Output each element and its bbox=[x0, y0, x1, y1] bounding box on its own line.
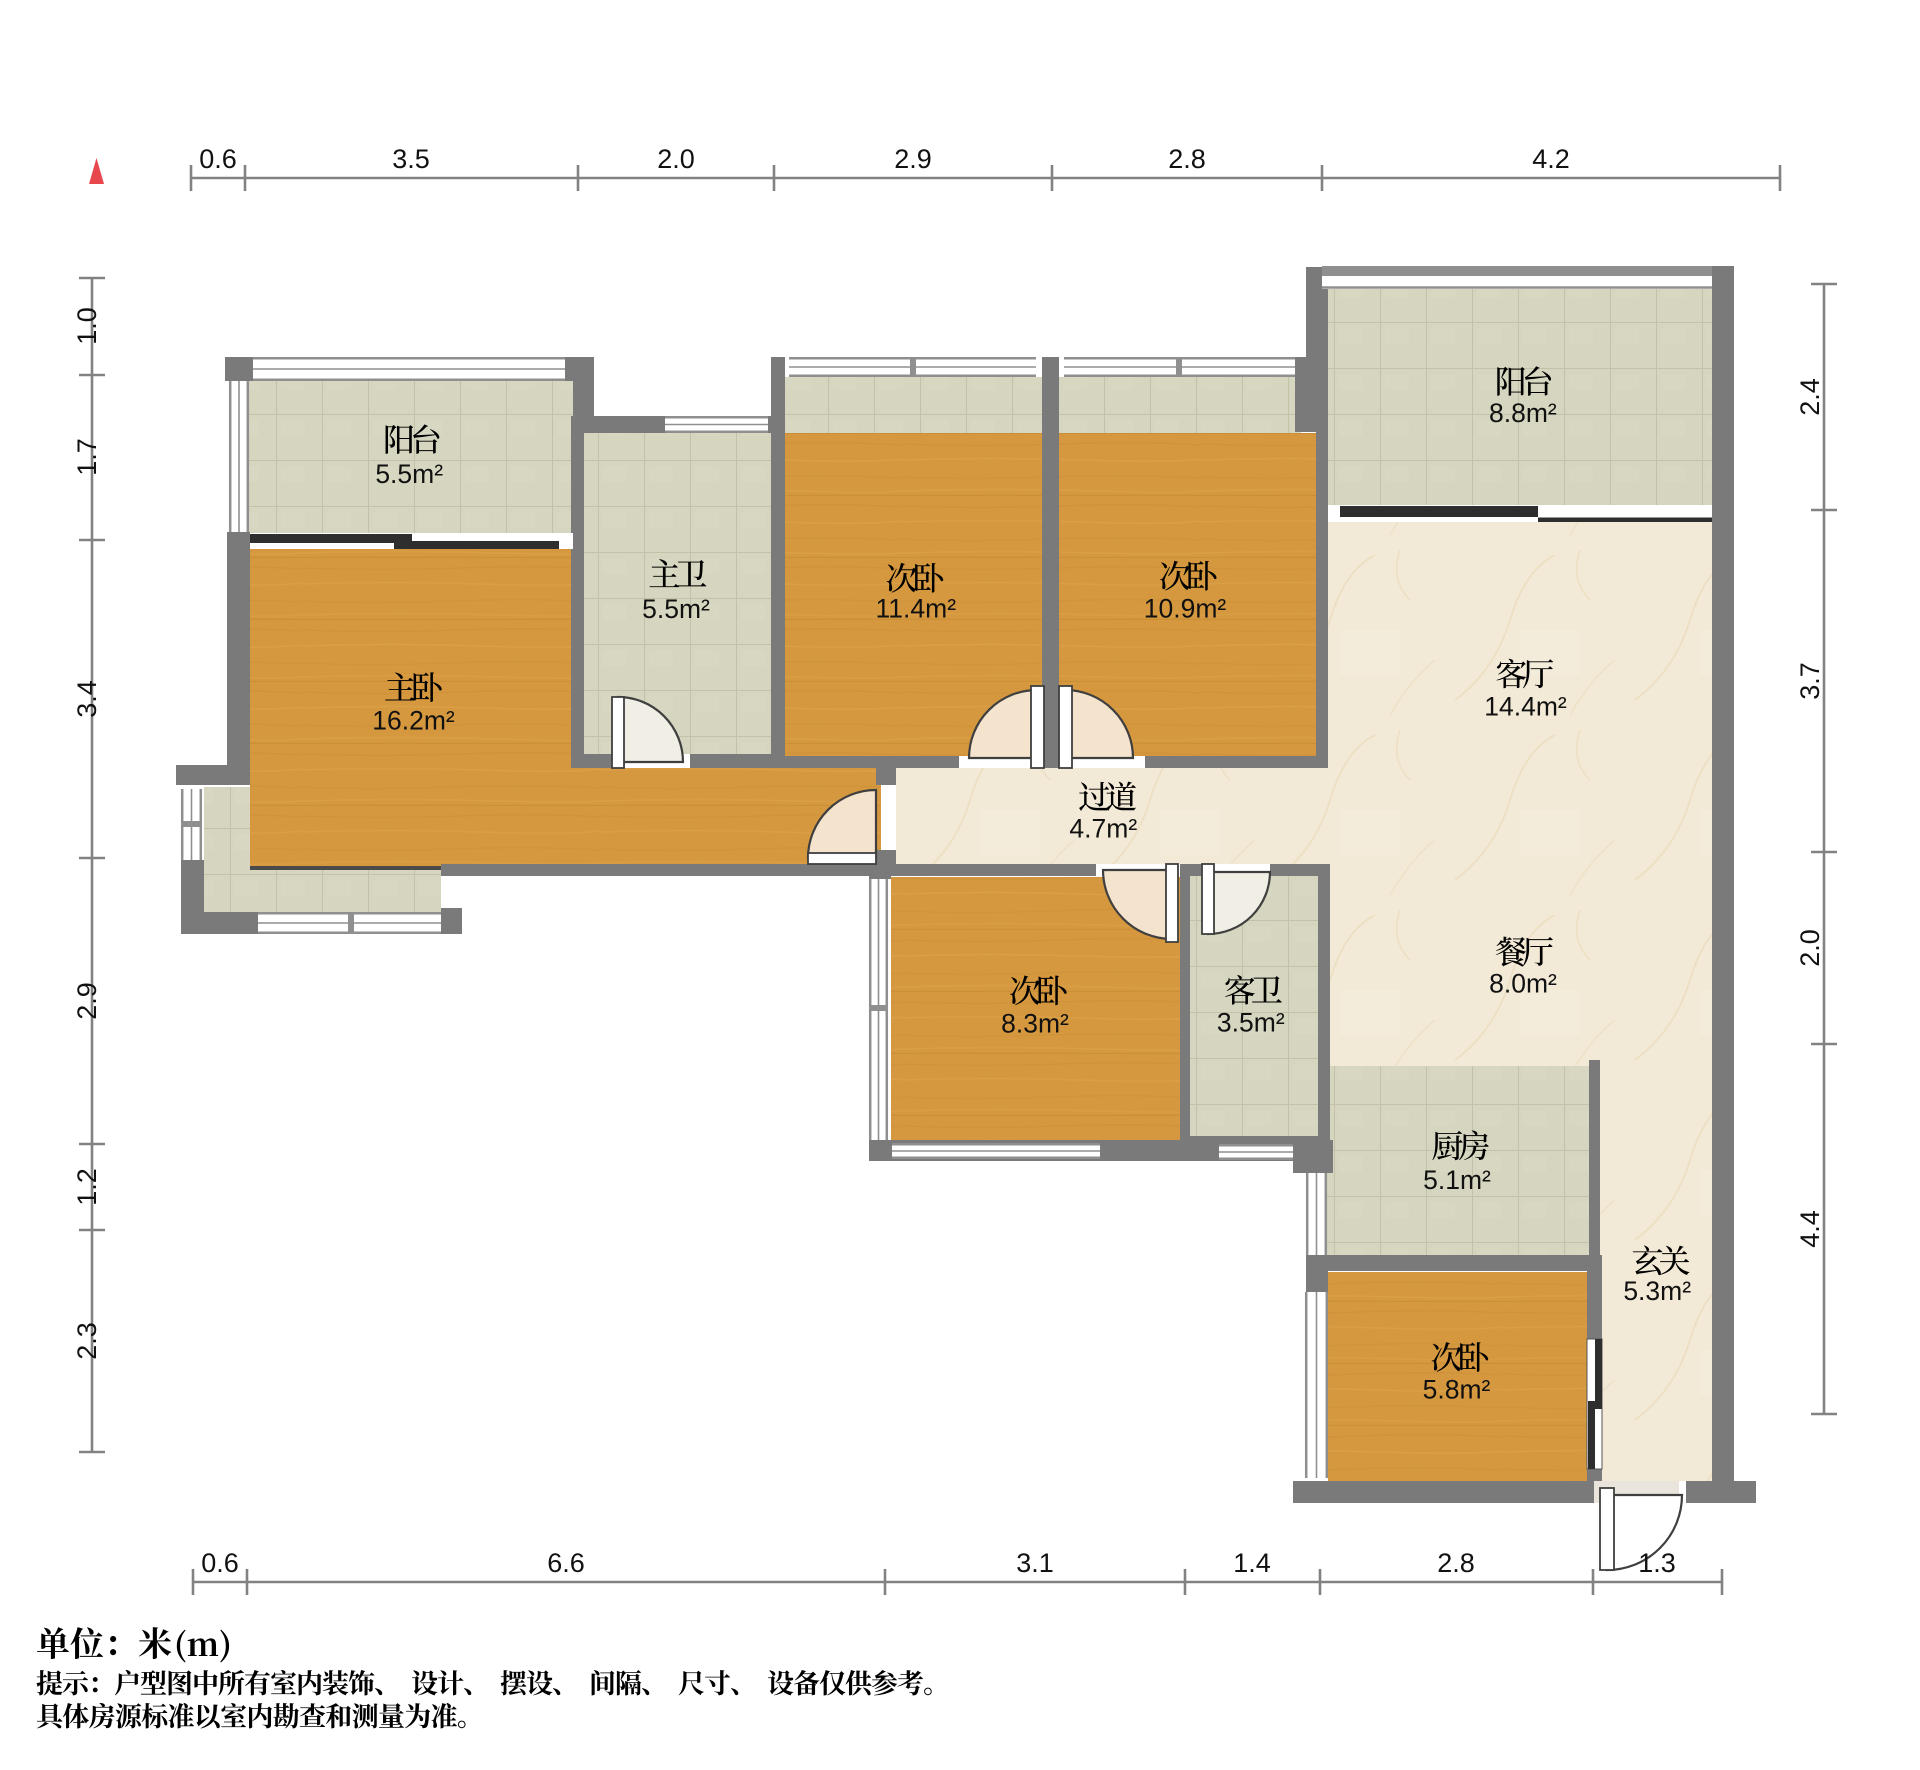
svg-text:1.2: 1.2 bbox=[72, 1168, 102, 1206]
svg-text:2.9: 2.9 bbox=[894, 144, 932, 174]
svg-text:14.4m²: 14.4m² bbox=[1484, 691, 1567, 721]
svg-text:2.0: 2.0 bbox=[657, 144, 695, 174]
svg-text:4.4: 4.4 bbox=[1795, 1210, 1825, 1248]
svg-text:3.5m²: 3.5m² bbox=[1217, 1008, 1285, 1038]
svg-text:5.1m²: 5.1m² bbox=[1423, 1165, 1491, 1195]
svg-text:11.4m²: 11.4m² bbox=[876, 593, 957, 623]
svg-text:1.3: 1.3 bbox=[1638, 1548, 1676, 1578]
svg-text:5.8m²: 5.8m² bbox=[1423, 1375, 1491, 1405]
svg-text:8.0m²: 8.0m² bbox=[1489, 969, 1557, 999]
svg-text:0.6: 0.6 bbox=[201, 1548, 239, 1578]
svg-text:2.8: 2.8 bbox=[1437, 1548, 1475, 1578]
svg-text:6.6: 6.6 bbox=[547, 1548, 585, 1578]
svg-text:1.4: 1.4 bbox=[1233, 1548, 1271, 1578]
svg-text:3.5: 3.5 bbox=[392, 144, 430, 174]
svg-text:16.2m²: 16.2m² bbox=[372, 705, 455, 735]
svg-text:2.4: 2.4 bbox=[1795, 378, 1825, 416]
svg-text:0.6: 0.6 bbox=[199, 144, 237, 174]
svg-text:2.8: 2.8 bbox=[1168, 144, 1206, 174]
svg-text:5.5m²: 5.5m² bbox=[642, 594, 710, 624]
svg-text:10.9m²: 10.9m² bbox=[1144, 593, 1227, 623]
svg-text:2.9: 2.9 bbox=[72, 982, 102, 1020]
svg-text:3.1: 3.1 bbox=[1016, 1548, 1054, 1578]
svg-text:5.5m²: 5.5m² bbox=[375, 459, 443, 489]
svg-text:8.8m²: 8.8m² bbox=[1489, 398, 1557, 428]
svg-text:2.3: 2.3 bbox=[72, 1322, 102, 1360]
svg-text:3.4: 3.4 bbox=[72, 680, 102, 718]
svg-text:5.3m²: 5.3m² bbox=[1623, 1276, 1691, 1306]
svg-text:8.3m²: 8.3m² bbox=[1001, 1009, 1069, 1039]
svg-text:3.7: 3.7 bbox=[1795, 662, 1825, 700]
svg-text:4.7m²: 4.7m² bbox=[1069, 814, 1137, 844]
svg-text:1.0: 1.0 bbox=[72, 307, 102, 345]
svg-text:2.0: 2.0 bbox=[1795, 929, 1825, 967]
svg-text:4.2: 4.2 bbox=[1532, 144, 1570, 174]
svg-text:1.7: 1.7 bbox=[72, 438, 102, 476]
